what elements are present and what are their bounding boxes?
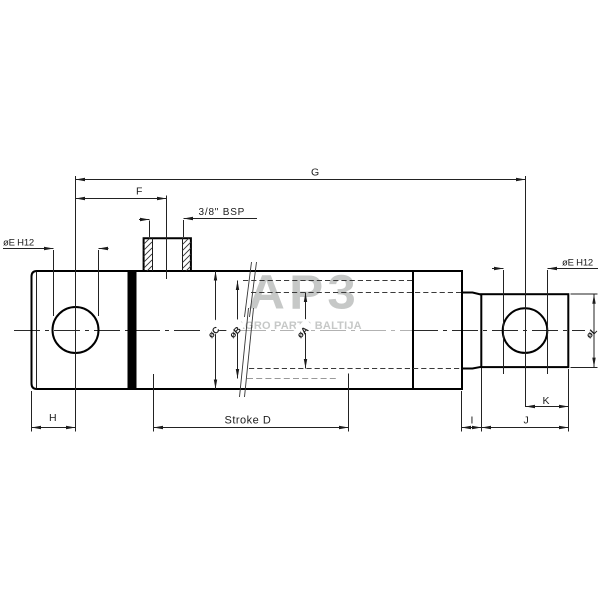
- svg-text:øL: øL: [584, 325, 599, 340]
- svg-text:øE H12: øE H12: [562, 258, 593, 269]
- svg-text:I: I: [471, 415, 474, 427]
- svg-text:F: F: [136, 186, 142, 198]
- svg-text:Stroke D: Stroke D: [225, 415, 272, 427]
- svg-text:K: K: [543, 395, 550, 407]
- svg-text:H: H: [49, 412, 57, 424]
- svg-text:G: G: [311, 167, 319, 179]
- svg-text:J: J: [524, 415, 529, 427]
- svg-text:3/8" BSP: 3/8" BSP: [199, 207, 246, 218]
- svg-text:øE H12: øE H12: [3, 238, 34, 249]
